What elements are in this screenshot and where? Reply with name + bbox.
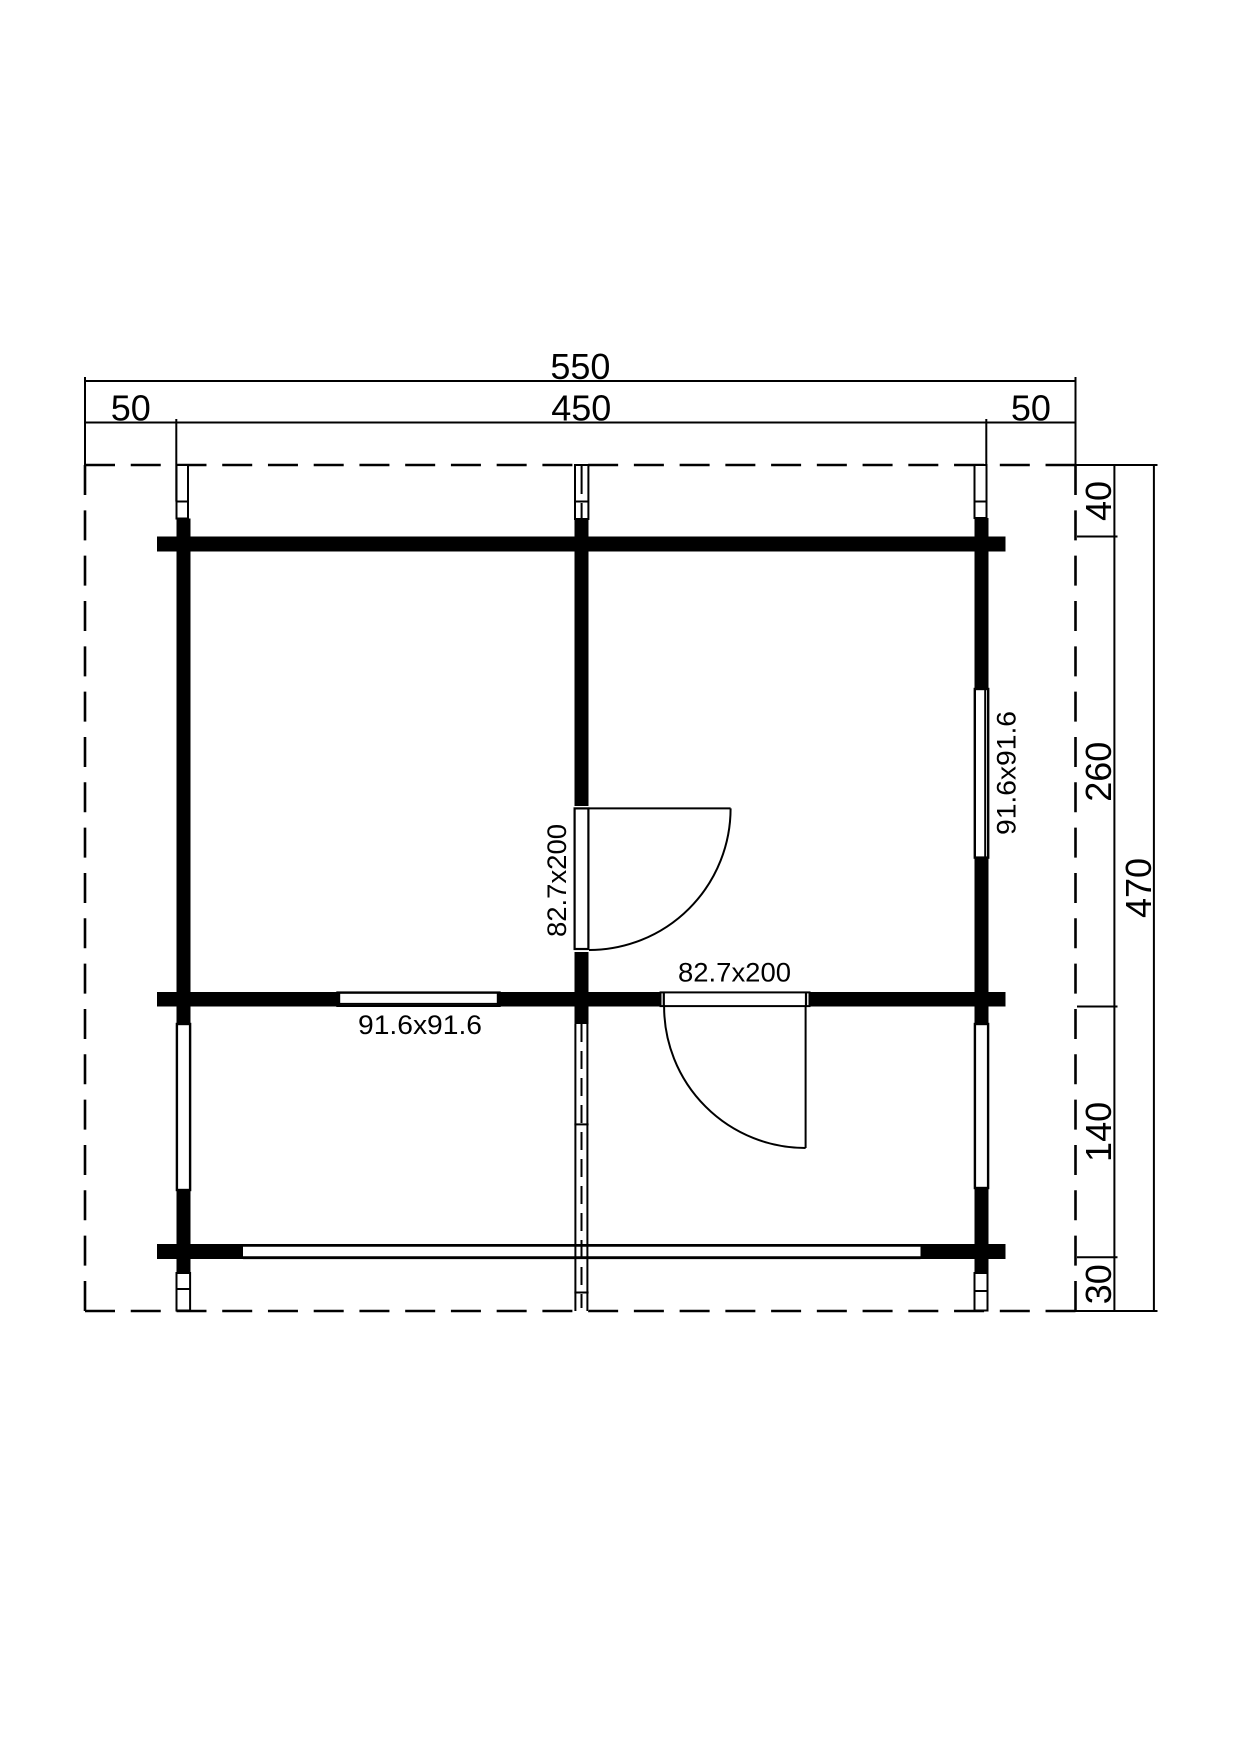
svg-text:82.7x200: 82.7x200 [542, 824, 572, 937]
svg-text:91.6x91.6: 91.6x91.6 [991, 711, 1021, 835]
svg-text:82.7x200: 82.7x200 [678, 958, 791, 988]
svg-text:140: 140 [1078, 1102, 1119, 1162]
svg-text:40: 40 [1078, 481, 1119, 521]
svg-text:450: 450 [551, 388, 611, 429]
svg-text:50: 50 [1011, 388, 1051, 429]
svg-text:550: 550 [550, 346, 610, 387]
svg-text:91.6x91.6: 91.6x91.6 [358, 1010, 482, 1040]
svg-text:260: 260 [1078, 742, 1119, 802]
svg-text:470: 470 [1118, 858, 1159, 918]
svg-text:30: 30 [1078, 1264, 1119, 1304]
svg-text:50: 50 [111, 388, 151, 429]
